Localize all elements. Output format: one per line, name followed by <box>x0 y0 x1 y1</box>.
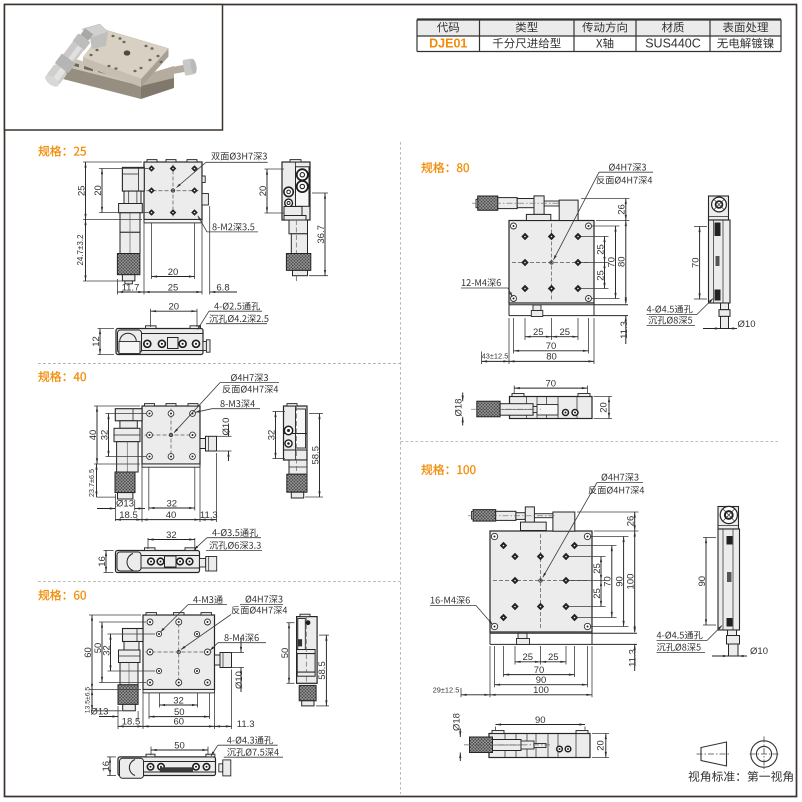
svg-text:11.3: 11.3 <box>619 321 630 339</box>
svg-text:90: 90 <box>614 576 625 587</box>
svg-text:24.7±3.2: 24.7±3.2 <box>76 234 85 266</box>
svg-text:Ø10: Ø10 <box>234 671 245 689</box>
svg-text:18.5: 18.5 <box>119 510 138 521</box>
svg-text:90: 90 <box>697 576 708 587</box>
svg-text:20: 20 <box>258 186 269 197</box>
svg-text:40: 40 <box>166 510 177 521</box>
svg-text:6.8: 6.8 <box>216 282 229 293</box>
svg-text:32: 32 <box>167 498 178 509</box>
svg-text:25: 25 <box>592 563 603 574</box>
svg-text:25: 25 <box>76 185 87 196</box>
svg-text:50: 50 <box>280 648 291 659</box>
svg-text:32: 32 <box>266 430 277 441</box>
svg-text:60: 60 <box>173 717 184 728</box>
svg-text:43±12.5: 43±12.5 <box>482 352 509 361</box>
svg-text:25: 25 <box>595 270 606 281</box>
svg-text:80: 80 <box>617 256 628 267</box>
svg-text:90: 90 <box>535 715 546 726</box>
svg-text:25: 25 <box>533 327 544 338</box>
svg-text:DJE01: DJE01 <box>429 37 467 51</box>
svg-text:Ø13: Ø13 <box>116 499 134 510</box>
svg-text:Ø10: Ø10 <box>221 418 232 436</box>
svg-text:20: 20 <box>599 402 610 413</box>
svg-text:12: 12 <box>91 336 102 347</box>
svg-text:SUS440C: SUS440C <box>645 37 701 51</box>
svg-text:40: 40 <box>88 430 99 441</box>
svg-text:58.5: 58.5 <box>317 661 328 680</box>
svg-text:11.3: 11.3 <box>237 719 255 730</box>
svg-text:20: 20 <box>168 267 179 278</box>
svg-text:26: 26 <box>617 204 628 215</box>
svg-text:23.7±6.5: 23.7±6.5 <box>87 469 96 497</box>
svg-text:32: 32 <box>99 430 110 441</box>
svg-text:Ø18: Ø18 <box>451 713 462 731</box>
svg-text:16: 16 <box>97 556 108 567</box>
svg-text:36.7: 36.7 <box>316 225 327 244</box>
svg-text:25: 25 <box>522 652 533 663</box>
svg-text:Ø10: Ø10 <box>738 319 756 330</box>
svg-text:25: 25 <box>168 282 179 293</box>
svg-text:32: 32 <box>173 695 184 706</box>
svg-text:58.5: 58.5 <box>310 446 321 465</box>
svg-text:29±12.5: 29±12.5 <box>433 685 460 694</box>
svg-text:Ø18: Ø18 <box>454 399 465 417</box>
svg-text:50: 50 <box>174 740 185 751</box>
svg-text:100: 100 <box>626 574 637 590</box>
svg-text:20: 20 <box>93 185 104 196</box>
svg-text:70: 70 <box>603 576 614 587</box>
svg-text:11.3: 11.3 <box>200 510 218 521</box>
svg-text:32: 32 <box>166 530 177 541</box>
svg-text:25: 25 <box>548 652 559 663</box>
svg-text:25: 25 <box>592 588 603 599</box>
svg-text:80: 80 <box>546 352 557 363</box>
svg-text:100: 100 <box>533 685 549 696</box>
svg-text:25: 25 <box>595 244 606 255</box>
svg-text:18.5: 18.5 <box>122 717 141 728</box>
svg-text:70: 70 <box>546 378 557 389</box>
svg-text:Ø13: Ø13 <box>91 707 109 718</box>
svg-text:32: 32 <box>101 645 112 656</box>
svg-text:11.3: 11.3 <box>628 649 639 667</box>
svg-text:20: 20 <box>168 302 179 313</box>
svg-text:Ø10: Ø10 <box>750 646 768 657</box>
svg-text:16: 16 <box>101 761 112 772</box>
svg-text:11.7: 11.7 <box>122 282 140 293</box>
svg-text:20: 20 <box>595 740 606 751</box>
svg-text:25: 25 <box>559 327 570 338</box>
svg-text:70: 70 <box>690 257 701 268</box>
svg-text:26: 26 <box>626 516 637 527</box>
svg-text:70: 70 <box>546 341 557 352</box>
